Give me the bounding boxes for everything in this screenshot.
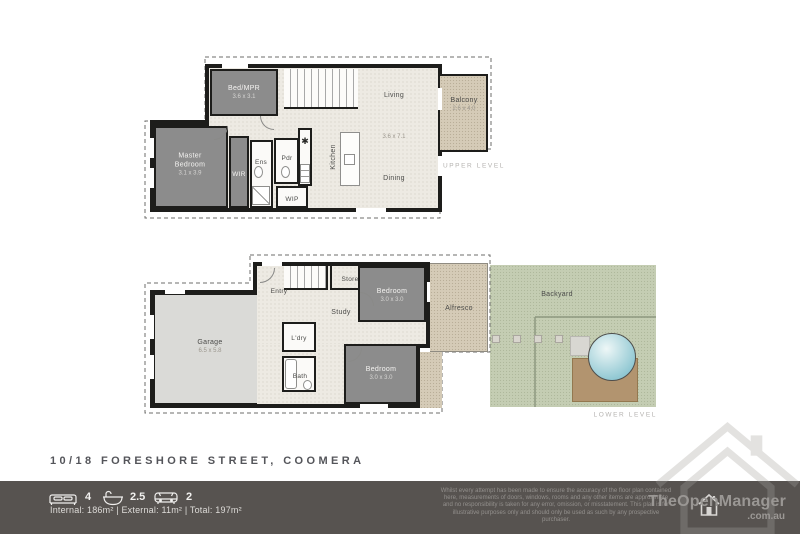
upper-level-label: UPPER LEVEL [443,163,505,170]
label-living: Living [384,83,404,103]
label-living-dims: 3.6 x 7.1 [382,124,405,144]
bath-icon [101,490,125,506]
label-wip: WIP [285,187,298,207]
area-summary: Internal: 186m² | External: 11m² | Total… [50,505,242,515]
baths-count: 2.5 [130,491,145,503]
lower-window [427,282,430,302]
beds-count: 4 [85,491,91,503]
label-bed-mpr: Bed/MPR3.6 x 3.1 [228,85,260,101]
label-dining: Dining [383,166,405,186]
upper-window [438,156,442,176]
kitchen-appliance [300,164,310,183]
floorplan-page: Bed/MPR3.6 x 3.1 Master Bedroom3.1 x 3.9… [0,0,800,534]
label-alfresco: Alfresco [445,296,473,316]
ens-shower [252,186,270,205]
label-balcony: Balcony2.6 x 4.0 [450,97,477,113]
lower-window [150,315,154,339]
label-entry: Entry [271,279,288,299]
label-pdr: Pdr [281,146,292,166]
disclaimer-text: Whilst every attempt has been made to en… [440,488,672,524]
upper-window [150,138,154,158]
label-study: Study [331,300,350,320]
lower-window [165,290,185,294]
brand-domain: .com.au [747,511,785,522]
lower-level-label: LOWER LEVEL [594,412,657,419]
pdr-toilet [281,166,290,178]
upper-window [222,64,248,68]
label-bedroom-1: Bedroom3.0 x 3.0 [377,288,408,304]
upper-window [438,88,442,110]
car-icon [153,491,179,505]
label-ens: Ens [255,150,267,170]
label-bath: Bath [293,364,308,384]
lower-stairs [284,266,328,290]
label-backyard: Backyard [541,282,573,302]
brand-name: TheOpenManager [648,493,786,511]
label-master-bedroom: Master Bedroom3.1 x 3.9 [164,153,216,178]
watermark-house-top [655,418,800,481]
address: 10/18 FORESHORE STREET, COOMERA [50,455,364,467]
label-store: Store [341,267,358,287]
kitchen-island-sink [344,154,355,165]
label-kitchen-marker: ✱ [301,130,309,150]
lower-window [360,404,388,408]
alfresco-strip [420,352,442,408]
label-kitchen: Kitchen [321,144,341,169]
upper-window [356,208,386,212]
label-bedroom-2: Bedroom3.0 x 3.0 [366,366,397,382]
upper-stairs [284,69,358,109]
lower-window [262,262,282,266]
label-wir: WIR [232,162,246,182]
label-ldry: L'dry [291,326,306,346]
cars-count: 2 [186,491,192,503]
lower-window [150,355,154,379]
bed-icon [48,491,78,506]
upper-window [150,168,154,188]
label-garage: Garage6.5 x 5.8 [197,339,222,355]
